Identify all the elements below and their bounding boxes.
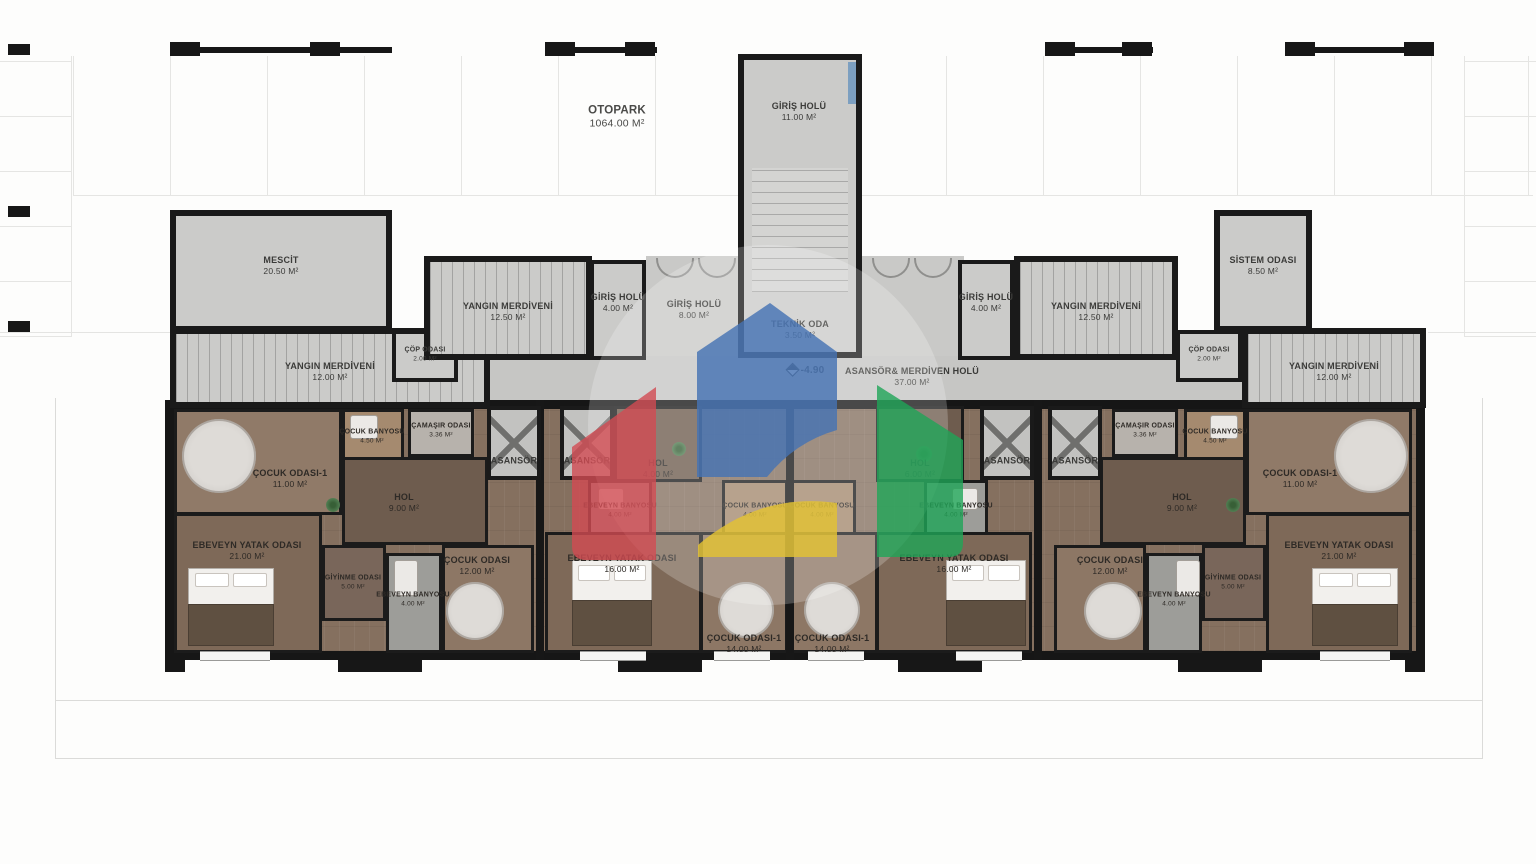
room-name: ÇOCUK ODASI (444, 555, 510, 565)
room-area: 3.36 M² (1115, 431, 1174, 439)
room-name: EBEVEYN YATAK ODASI (193, 540, 302, 550)
label-laundry-right: ÇAMAŞIR ODASI 3.36 M² (1115, 423, 1174, 440)
room-name: YANGIN MERDİVENİ (285, 361, 375, 371)
label-childbath-c: ÇOCUK BANYOSU 4.00 M² (789, 503, 854, 520)
column (310, 42, 340, 56)
room-area: 4.00 M² (591, 303, 646, 314)
room-area: 3.36 M² (411, 431, 470, 439)
site-line (1428, 332, 1536, 333)
window (200, 651, 270, 661)
column (8, 44, 30, 55)
plant (326, 498, 340, 512)
label-masterbath-left: EBEVEYN BANYOSU 4.00 M² (376, 592, 449, 609)
elevator-shaft (1048, 406, 1102, 480)
room-area: 9.00 M² (1167, 503, 1197, 514)
column (8, 321, 30, 332)
elevation-marker: -4.90 (788, 365, 825, 378)
elevator-stair-hall (420, 356, 1242, 404)
label-teknik-oda: TEKNİK ODA 3.50 M² (771, 319, 829, 341)
room-area: 21.00 M² (1285, 551, 1394, 562)
label-hall-left: HOL 9.00 M² (389, 492, 419, 514)
room-area: 11.00 M² (253, 479, 328, 490)
label-hall-c: HOL 6.00 M² (905, 458, 935, 480)
room-name: ASANSÖR (491, 455, 537, 465)
room-area: 6.00 M² (905, 469, 935, 480)
room-area: 14.00 M² (707, 644, 782, 655)
column (1404, 42, 1434, 56)
room-name: EBEVEYN YATAK ODASI (1285, 540, 1394, 550)
label-masterbath-b: EBEVEYN BANYOSU 4.00 M² (583, 503, 656, 520)
room-name: GİYİNME ODASI (1205, 575, 1261, 582)
room-area: 11.00 M² (772, 112, 827, 123)
label-elevator: ASANSÖR (491, 455, 537, 466)
label-mescit: MESCİT 20.50 M² (263, 255, 298, 277)
room-name: GİRİŞ HOLÜ (667, 299, 722, 309)
room-area: 12.00 M² (1077, 566, 1143, 577)
room-name: OTOPARK (588, 104, 646, 116)
room-name: EBEVEYN BANYOSU (919, 503, 992, 510)
label-childbath-left: ÇOCUK BANYOSU 4.50 M² (339, 429, 404, 446)
terrace-line (55, 700, 1483, 701)
room-area: 1064.00 M² (588, 118, 646, 131)
room-name: MESCİT (263, 255, 298, 265)
tower-stairs (752, 168, 848, 292)
room-name: ASANSÖR (1052, 455, 1098, 465)
label-fire-stair-midright: YANGIN MERDİVENİ 12.50 M² (1051, 301, 1141, 323)
room-name: ÇOCUK BANYOSU (1182, 429, 1247, 436)
round-rug (182, 419, 256, 493)
label-elevator: ASANSÖR (984, 455, 1030, 466)
room-area: 12.00 M² (444, 566, 510, 577)
window (580, 651, 646, 661)
room-name: EBEVEYN YATAK ODASI (568, 553, 677, 563)
terrace-stub (338, 658, 422, 672)
round-rug (1334, 419, 1408, 493)
glass-panel (848, 62, 856, 104)
room-area: 12.50 M² (1051, 312, 1141, 323)
label-master-left: EBEVEYN YATAK ODASI 21.00 M² (193, 540, 302, 562)
room-area: 8.50 M² (1230, 266, 1297, 277)
party-wall (786, 400, 794, 660)
window (956, 651, 1022, 661)
room-area: 20.50 M² (263, 266, 298, 277)
round-rug (1084, 582, 1142, 640)
label-system-room: SİSTEM ODASI 8.50 M² (1230, 255, 1297, 277)
label-master-b: EBEVEYN YATAK ODASI 16.00 M² (568, 553, 677, 575)
terrace-line (55, 398, 56, 758)
room-name: ASANSÖR (984, 455, 1030, 465)
room-name: TEKNİK ODA (771, 319, 829, 329)
label-fire-stair-left: YANGIN MERDİVENİ 12.00 M² (285, 361, 375, 383)
label-masterbath-right: EBEVEYN BANYOSU 4.00 M² (1137, 592, 1210, 609)
room-area: 4.00 M² (789, 511, 854, 519)
double-bed (1312, 568, 1398, 646)
room-area: 12.00 M² (1289, 372, 1379, 383)
parking-grid-right (1464, 56, 1536, 337)
label-giris-holu-4-left: GİRİŞ HOLÜ 4.00 M² (591, 292, 646, 314)
room-name: ÇOCUK BANYOSU (339, 429, 404, 436)
label-childbath-right: ÇOCUK BANYOSU 4.50 M² (1182, 429, 1247, 446)
room-name: YANGIN MERDİVENİ (463, 301, 553, 311)
parking-grid-left (0, 56, 72, 337)
column (625, 42, 655, 56)
round-rug (446, 582, 504, 640)
elevation-icon (786, 363, 800, 377)
room-area: 12.50 M² (463, 312, 553, 323)
label-elevator: ASANSÖR (564, 455, 610, 466)
room-area: 4.00 M² (643, 469, 673, 480)
label-elevator-hall: ASANSÖR& MERDİVEN HOLÜ 37.00 M² (845, 366, 979, 388)
room-area: 9.00 M² (389, 503, 419, 514)
room-name: GİRİŞ HOLÜ (959, 292, 1014, 302)
room-name: YANGIN MERDİVENİ (1289, 361, 1379, 371)
room-area: 4.00 M² (919, 511, 992, 519)
label-giris-holu-4-right: GİRİŞ HOLÜ 4.00 M² (959, 292, 1014, 314)
label-hall-b: HOL 4.00 M² (643, 458, 673, 480)
room-name: ÇOCUK BANYOSU (722, 503, 787, 510)
label-hall-right: HOL 9.00 M² (1167, 492, 1197, 514)
room-area: 4.00 M² (376, 600, 449, 608)
room-name: HOL (648, 458, 668, 468)
label-child1-right: ÇOCUK ODASI-1 11.00 M² (1263, 468, 1338, 490)
room-area: 5.00 M² (325, 583, 381, 591)
room-area: 4.00 M² (722, 511, 787, 519)
room-name: YANGIN MERDİVENİ (1051, 301, 1141, 311)
room-name: ÇOCUK ODASI (1077, 555, 1143, 565)
room-area: 2.00 M² (1189, 355, 1230, 363)
room-area: 2.00 M² (405, 355, 446, 363)
label-dressing-left: GİYİNME ODASI 5.00 M² (325, 575, 381, 592)
label-giris-holu-8: GİRİŞ HOLÜ 8.00 M² (667, 299, 722, 321)
label-master-c: EBEVEYN YATAK ODASI 16.00 M² (900, 553, 1009, 575)
plant (1226, 498, 1240, 512)
room-area: 16.00 M² (900, 564, 1009, 575)
floor-plan-canvas: OTOPARK 1064.00 M² GİRİŞ HOLÜ 11.00 M² M… (0, 0, 1536, 864)
room-name: EBEVEYN BANYOSU (376, 592, 449, 599)
window (1320, 651, 1390, 661)
room-area: 37.00 M² (845, 377, 979, 388)
elevator-shaft (560, 406, 614, 480)
room-name: SİSTEM ODASI (1230, 255, 1297, 265)
room-name: ÇOCUK ODASI-1 (253, 468, 328, 478)
site-line (0, 332, 170, 333)
label-childbath-b: ÇOCUK BANYOSU 4.00 M² (722, 503, 787, 520)
column (8, 206, 30, 217)
label-child12-left: ÇOCUK ODASI 12.00 M² (444, 555, 510, 577)
terrace-line (1482, 398, 1483, 758)
label-laundry-left: ÇAMAŞIR ODASI 3.36 M² (411, 423, 470, 440)
label-elevator: ASANSÖR (1052, 455, 1098, 466)
round-rug (718, 582, 774, 638)
plant (672, 442, 686, 456)
label-masterbath-c: EBEVEYN BANYOSU 4.00 M² (919, 503, 992, 520)
room-name: ÇAMAŞIR ODASI (1115, 423, 1174, 430)
column (1045, 42, 1075, 56)
label-trash-right: ÇÖP ODASI 2.00 M² (1189, 347, 1230, 364)
room-area: 3.50 M² (771, 330, 829, 341)
room-name: ÇOCUK BANYOSU (789, 503, 854, 510)
room-name: ASANSÖR (564, 455, 610, 465)
room-name: ÇOCUK ODASI-1 (1263, 468, 1338, 478)
room-area: 4.00 M² (1137, 600, 1210, 608)
room-area: 14.00 M² (795, 644, 870, 655)
room-area: 4.50 M² (339, 437, 404, 445)
column (1122, 42, 1152, 56)
terrace-stub (1405, 658, 1425, 672)
room-name: HOL (1172, 492, 1192, 502)
label-fire-stair-right: YANGIN MERDİVENİ 12.00 M² (1289, 361, 1379, 383)
label-master-right: EBEVEYN YATAK ODASI 21.00 M² (1285, 540, 1394, 562)
room-area: 21.00 M² (193, 551, 302, 562)
room-area: 4.50 M² (1182, 437, 1247, 445)
room-name: HOL (910, 458, 930, 468)
column (1285, 42, 1315, 56)
column (545, 42, 575, 56)
terrace-stub (165, 658, 185, 672)
terrace-stub (1178, 658, 1262, 672)
room-area: 12.00 M² (285, 372, 375, 383)
elevation-value: -4.90 (801, 365, 825, 376)
top-wall-segment (170, 47, 392, 53)
elevator-shaft (980, 406, 1034, 480)
label-child-b: ÇOCUK ODASI-1 14.00 M² (707, 633, 782, 655)
room-name: EBEVEYN YATAK ODASI (900, 553, 1009, 563)
room-area: 8.00 M² (667, 310, 722, 321)
room-name: ASANSÖR& MERDİVEN HOLÜ (845, 366, 979, 376)
room-name: ÇOCUK ODASI-1 (707, 633, 782, 643)
label-dressing-right: GİYİNME ODASI 5.00 M² (1205, 575, 1261, 592)
room-name: ÇOCUK ODASI-1 (795, 633, 870, 643)
label-giris-holu-11: GİRİŞ HOLÜ 11.00 M² (772, 101, 827, 123)
label-child12-right: ÇOCUK ODASI 12.00 M² (1077, 555, 1143, 577)
label-child1-left: ÇOCUK ODASI-1 11.00 M² (253, 468, 328, 490)
terrace-line (55, 758, 1483, 759)
room-name: ÇÖP ODASI (1189, 347, 1230, 354)
room-name: EBEVEYN BANYOSU (583, 503, 656, 510)
label-child-c: ÇOCUK ODASI-1 14.00 M² (795, 633, 870, 655)
elevator-shaft (487, 406, 541, 480)
column (170, 42, 200, 56)
room-name: GİYİNME ODASI (325, 575, 381, 582)
room-area: 4.00 M² (583, 511, 656, 519)
room-name: HOL (394, 492, 414, 502)
party-wall (1034, 400, 1042, 660)
double-bed (188, 568, 274, 646)
label-otopark: OTOPARK 1064.00 M² (588, 103, 646, 131)
room-name: GİRİŞ HOLÜ (591, 292, 646, 302)
room-name: ÇÖP ODASI (405, 347, 446, 354)
room-area: 4.00 M² (959, 303, 1014, 314)
label-fire-stair-midleft: YANGIN MERDİVENİ 12.50 M² (463, 301, 553, 323)
room-name: GİRİŞ HOLÜ (772, 101, 827, 111)
label-trash-left: ÇÖP ODASI 2.00 M² (405, 347, 446, 364)
room-area: 16.00 M² (568, 564, 677, 575)
room-area: 5.00 M² (1205, 583, 1261, 591)
room-name: ÇAMAŞIR ODASI (411, 423, 470, 430)
room-name: EBEVEYN BANYOSU (1137, 592, 1210, 599)
room-area: 11.00 M² (1263, 479, 1338, 490)
round-rug (804, 582, 860, 638)
